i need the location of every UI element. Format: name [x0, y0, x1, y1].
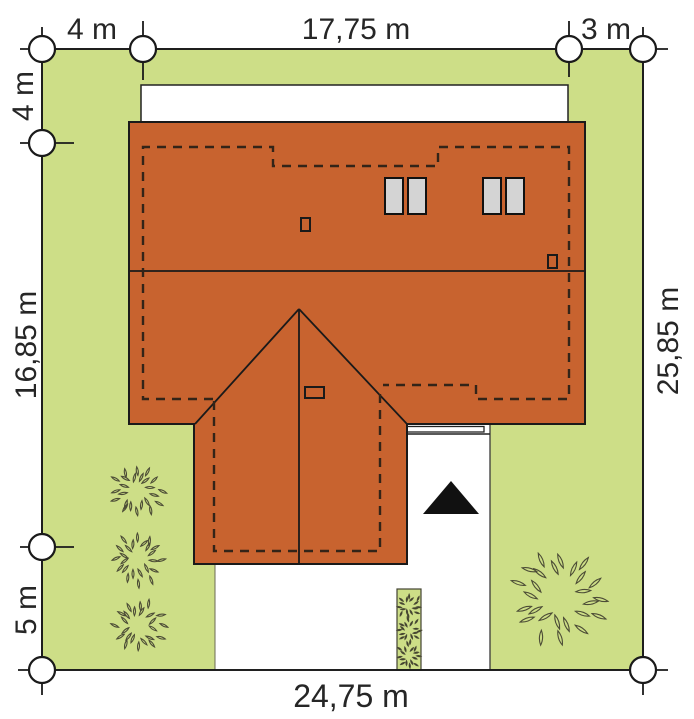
dim-bottom-plot-width: 24,75 m [293, 678, 409, 714]
dim-right-plot-depth: 25,85 m [652, 287, 685, 395]
leaf-icon [412, 608, 417, 610]
dim-left-top-setback: 4 m [7, 71, 40, 121]
survey-marker-icon [130, 36, 156, 62]
dim-top-right-setback: 3 m [581, 13, 631, 46]
site-plan-drawing: 4 m 17,75 m 3 m 4 m 16,85 m 5 m 25,85 m … [0, 0, 694, 719]
leaf-icon [413, 628, 418, 629]
terrace-strip [141, 85, 568, 122]
dim-left-bottom-setback: 5 m [10, 585, 43, 635]
survey-marker-icon [630, 36, 656, 62]
survey-marker-icon [556, 36, 582, 62]
survey-marker-icon [29, 130, 55, 156]
garage-door [407, 427, 484, 433]
leaf-icon [400, 608, 405, 610]
skylight [506, 178, 524, 214]
dim-top-left-setback: 4 m [67, 13, 117, 46]
site-plan: 4 m 17,75 m 3 m 4 m 16,85 m 5 m 25,85 m … [0, 0, 694, 719]
dim-top-house-width: 17,75 m [302, 13, 410, 46]
leaf-icon [400, 658, 405, 660]
survey-marker-icon [630, 657, 656, 683]
leaf-icon [408, 594, 409, 599]
survey-marker-icon [29, 534, 55, 560]
dim-left-house-depth: 16,85 m [10, 291, 43, 399]
survey-marker-icon [29, 657, 55, 683]
survey-marker-icon [29, 36, 55, 62]
skylight [385, 178, 403, 214]
skylight [408, 178, 426, 214]
skylight [483, 178, 501, 214]
leaf-icon [406, 660, 407, 665]
